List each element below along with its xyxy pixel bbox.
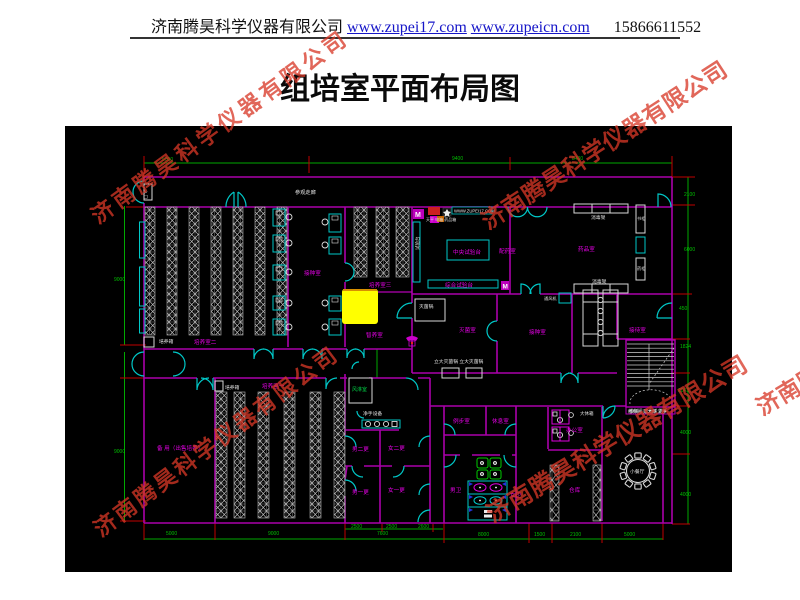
- svg-text:男一更: 男一更: [352, 489, 369, 496]
- svg-text:接待室: 接待室: [629, 326, 646, 334]
- svg-text:1500: 1500: [534, 532, 545, 538]
- svg-text:消毒架: 消毒架: [591, 214, 606, 221]
- svg-text:立大灭菌锅 立大灭菌锅: 立大灭菌锅 立大灭菌锅: [434, 358, 484, 365]
- svg-text:配药室: 配药室: [499, 247, 516, 255]
- svg-text:天平 电箱 药品箱: 天平 电箱 药品箱: [426, 216, 456, 222]
- svg-text:试验台: 试验台: [414, 236, 421, 250]
- svg-text:休息室: 休息室: [492, 417, 509, 425]
- svg-text:综合试验台: 综合试验台: [445, 281, 473, 289]
- svg-text:9000: 9000: [114, 449, 125, 455]
- svg-text:8000: 8000: [478, 532, 489, 538]
- svg-text:中央试验台: 中央试验台: [453, 248, 481, 256]
- svg-text:7600: 7600: [377, 531, 388, 537]
- svg-text:5000: 5000: [166, 531, 177, 537]
- svg-text:培养室三: 培养室三: [369, 281, 392, 289]
- svg-text:小餐厅: 小餐厅: [630, 468, 645, 475]
- svg-text:接种室: 接种室: [304, 269, 321, 277]
- svg-text:2100: 2100: [684, 192, 695, 198]
- svg-text:药品室: 药品室: [578, 245, 595, 253]
- svg-text:风淋室: 风淋室: [352, 386, 367, 393]
- svg-text:培养箱: 培养箱: [159, 338, 174, 345]
- svg-text:450: 450: [679, 306, 688, 312]
- svg-text:净手设备: 净手设备: [363, 410, 382, 417]
- svg-text:5000: 5000: [624, 532, 635, 538]
- svg-text:女二更: 女二更: [388, 444, 405, 452]
- svg-text:9400: 9400: [452, 156, 463, 162]
- svg-text:培养箱: 培养箱: [225, 384, 240, 391]
- svg-text:1824: 1824: [680, 344, 691, 350]
- svg-text:灭菌室: 灭菌室: [459, 326, 476, 334]
- svg-text:2600: 2600: [418, 524, 429, 530]
- svg-text:灭菌锅: 灭菌锅: [419, 303, 434, 310]
- svg-text:办公室: 办公室: [566, 426, 583, 434]
- svg-text:2100: 2100: [570, 532, 581, 538]
- svg-text:6000: 6000: [684, 247, 695, 253]
- svg-text:2500: 2500: [386, 524, 397, 530]
- svg-text:9000: 9000: [114, 277, 125, 283]
- svg-text:M: M: [415, 212, 421, 219]
- svg-text:4000: 4000: [680, 430, 691, 436]
- svg-text:女一更: 女一更: [388, 486, 405, 494]
- svg-text:大休箱: 大休箱: [580, 410, 594, 417]
- svg-text:例步室: 例步室: [453, 417, 470, 425]
- svg-text:消毒架: 消毒架: [592, 278, 607, 285]
- svg-text:9000: 9000: [268, 531, 279, 537]
- svg-text:男二更: 男二更: [352, 446, 369, 453]
- svg-text:参观走廊: 参观走廊: [295, 188, 316, 196]
- svg-text:4000: 4000: [680, 492, 691, 498]
- svg-text:书柜: 书柜: [637, 215, 645, 222]
- svg-text:药柜: 药柜: [637, 265, 645, 272]
- svg-text:M: M: [503, 284, 508, 291]
- svg-text:仓库: 仓库: [569, 486, 581, 494]
- svg-text:智养室: 智养室: [366, 331, 383, 339]
- svg-text:2500: 2500: [351, 524, 362, 530]
- svg-text:通风机: 通风机: [544, 295, 557, 302]
- svg-text:培养室二: 培养室二: [194, 338, 217, 346]
- svg-text:男卫: 男卫: [450, 487, 462, 494]
- svg-text:接种室: 接种室: [529, 328, 546, 336]
